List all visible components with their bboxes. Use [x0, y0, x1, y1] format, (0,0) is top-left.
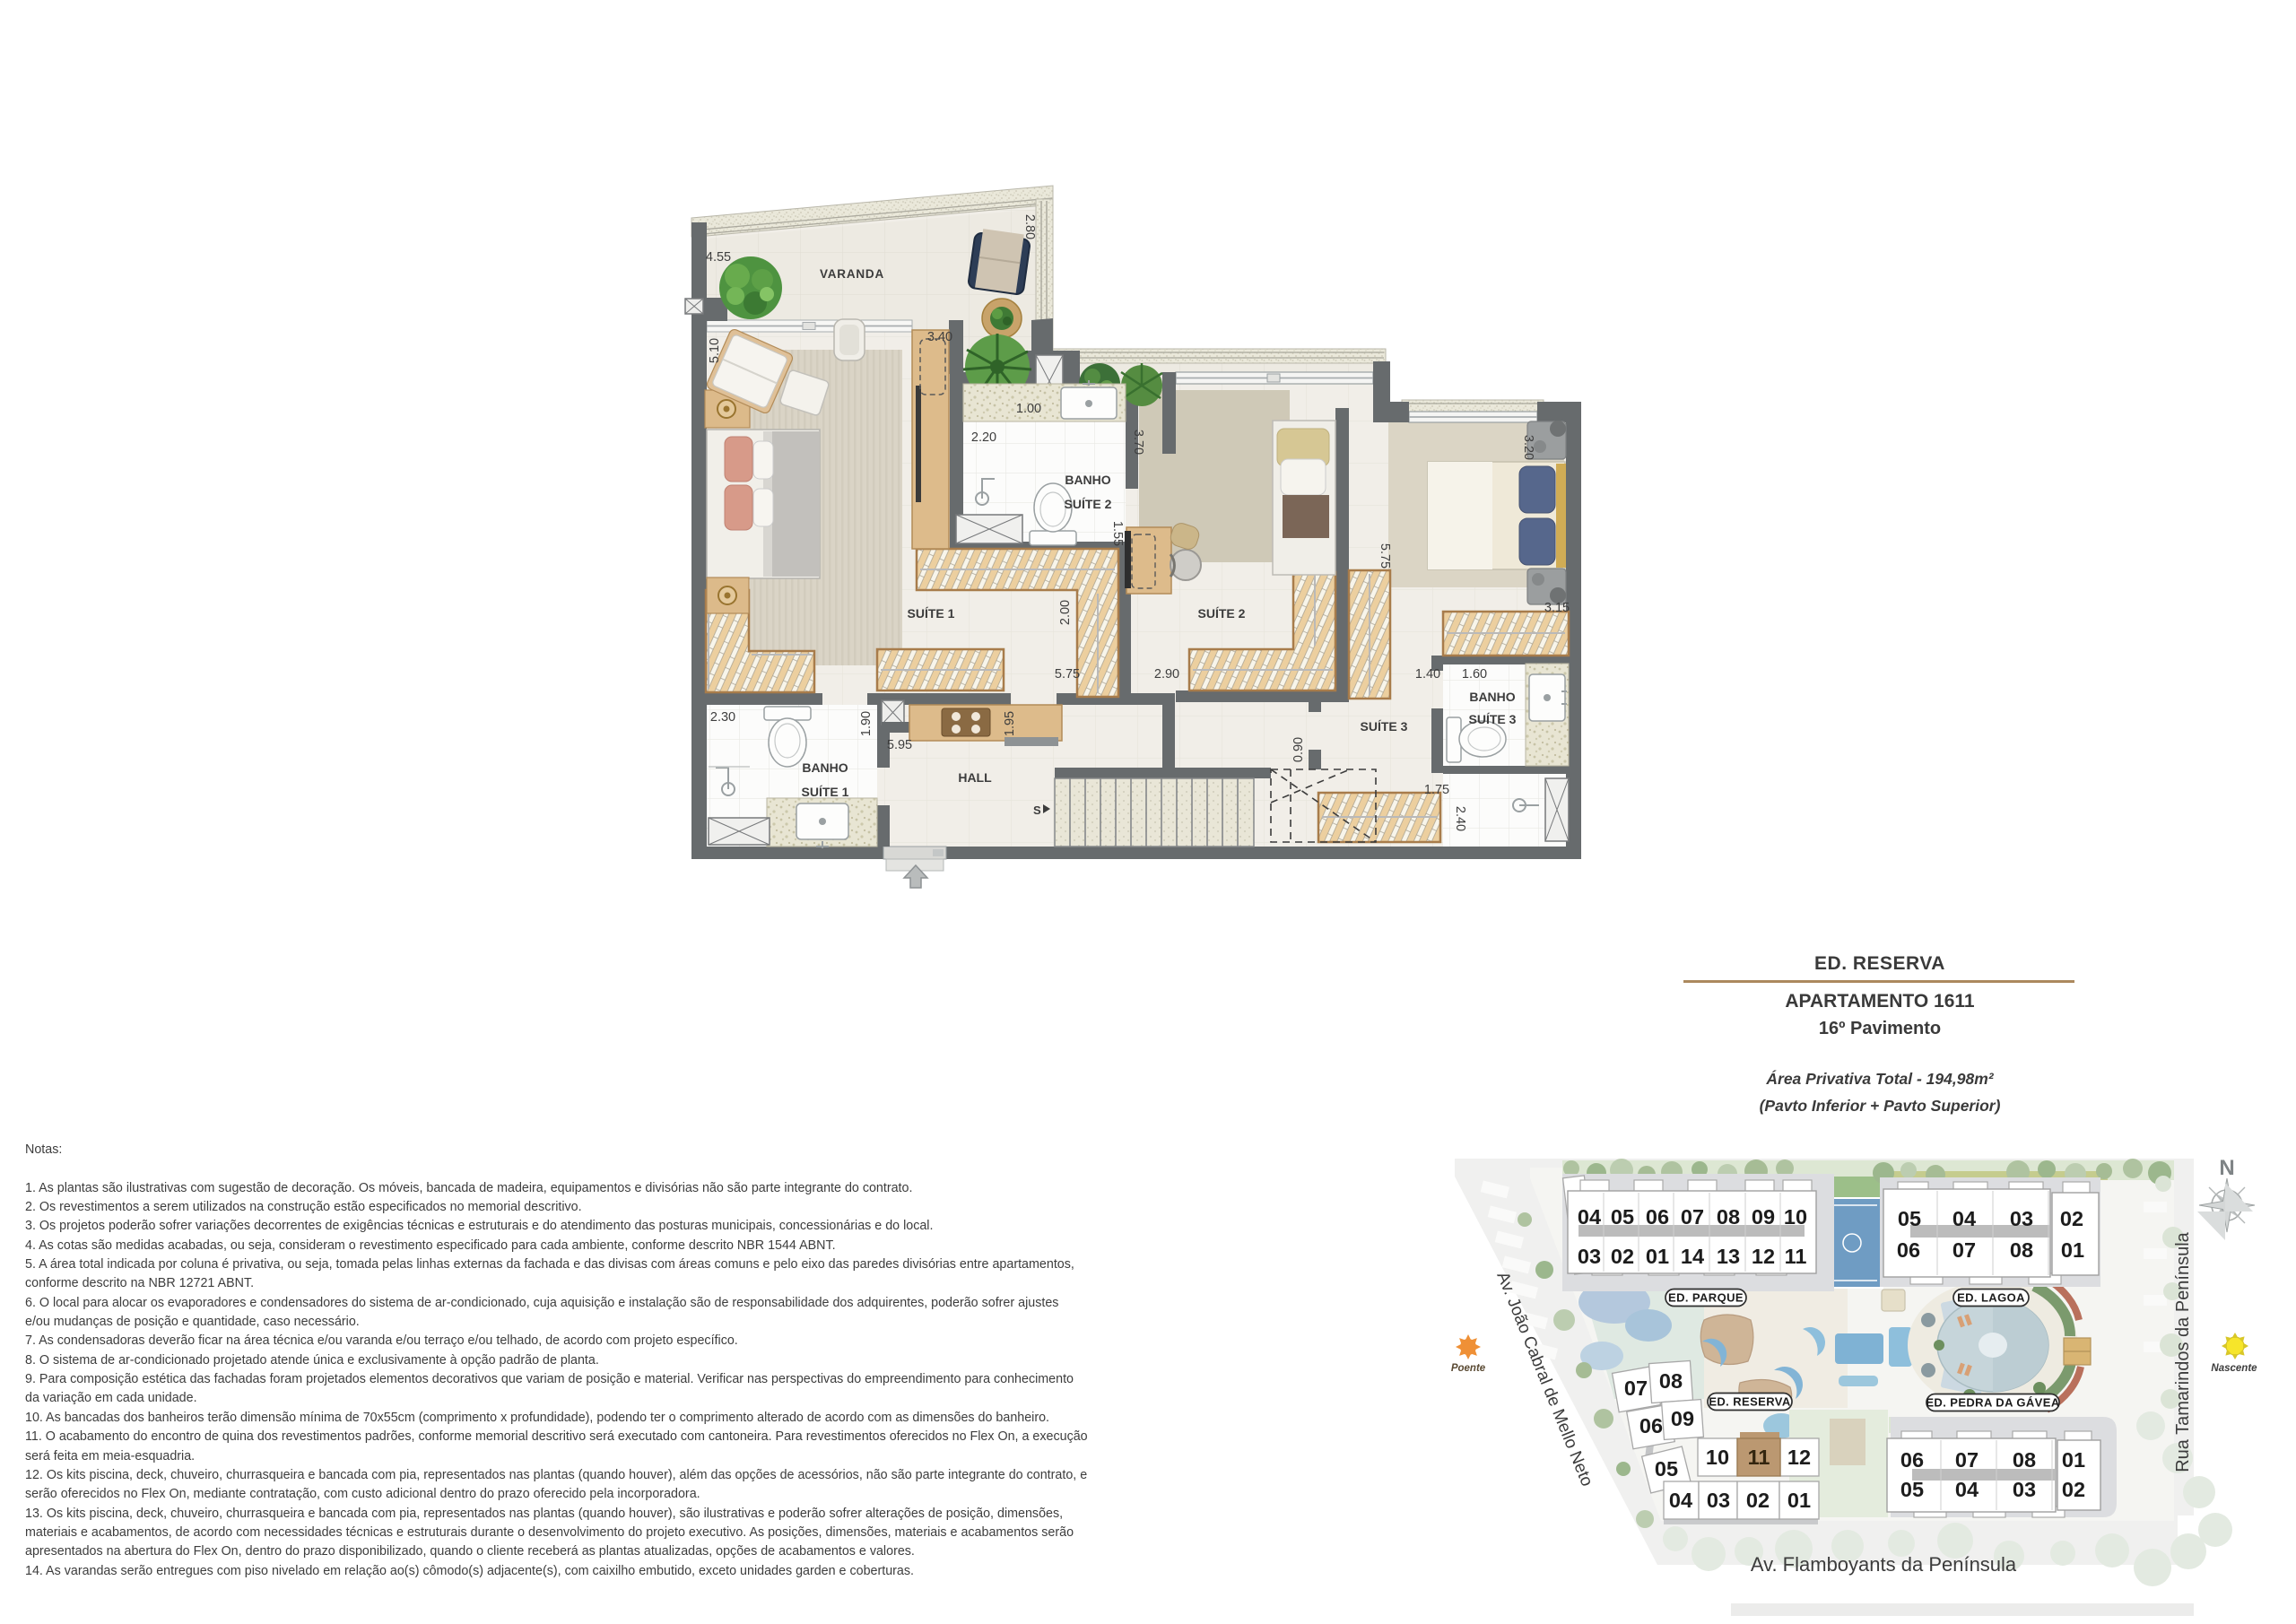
svg-text:03: 03 [2013, 1478, 2036, 1501]
svg-text:SUÍTE 3: SUÍTE 3 [1361, 719, 1408, 734]
svg-text:06: 06 [1897, 1238, 1920, 1262]
svg-text:5.75: 5.75 [1378, 543, 1392, 569]
svg-text:3.20: 3.20 [1521, 435, 1535, 460]
svg-text:2.90: 2.90 [1154, 667, 1179, 682]
svg-text:01: 01 [1646, 1245, 1669, 1268]
svg-text:5.75: 5.75 [1055, 667, 1080, 682]
svg-text:10: 10 [1706, 1446, 1729, 1469]
svg-text:2.00: 2.00 [1058, 600, 1073, 625]
svg-text:06: 06 [1646, 1205, 1669, 1229]
svg-text:3.70: 3.70 [1131, 430, 1145, 455]
svg-text:01: 01 [2061, 1238, 2084, 1262]
svg-text:02: 02 [1746, 1489, 1770, 1512]
svg-text:ED. PEDRA DA GÁVEA: ED. PEDRA DA GÁVEA [1926, 1396, 2059, 1410]
svg-text:05: 05 [1611, 1205, 1634, 1229]
svg-text:10: 10 [1784, 1205, 1807, 1229]
svg-text:05: 05 [1898, 1207, 1921, 1230]
svg-text:07: 07 [1681, 1205, 1704, 1229]
svg-text:2.40: 2.40 [1453, 806, 1467, 831]
svg-text:04: 04 [1955, 1478, 1979, 1501]
svg-text:2.80: 2.80 [1022, 214, 1037, 239]
svg-text:SUÍTE 1: SUÍTE 1 [908, 606, 955, 621]
svg-text:04: 04 [1952, 1207, 1976, 1230]
svg-text:06: 06 [1900, 1448, 1924, 1472]
svg-text:HALL: HALL [958, 770, 992, 785]
svg-text:S: S [1033, 803, 1041, 817]
svg-text:SUÍTE 1: SUÍTE 1 [802, 785, 849, 799]
svg-text:03: 03 [1707, 1489, 1730, 1512]
svg-text:14: 14 [1681, 1245, 1704, 1268]
svg-text:08: 08 [2010, 1238, 2033, 1262]
svg-text:ED. RESERVA: ED. RESERVA [1709, 1395, 1791, 1409]
svg-text:VARANDA: VARANDA [820, 267, 884, 281]
svg-text:05: 05 [1655, 1457, 1678, 1481]
svg-text:02: 02 [1611, 1245, 1634, 1268]
svg-text:07: 07 [1624, 1376, 1648, 1400]
svg-text:SUÍTE 2: SUÍTE 2 [1198, 606, 1246, 621]
svg-text:3.15: 3.15 [1544, 601, 1570, 615]
svg-text:13: 13 [1717, 1245, 1740, 1268]
svg-text:ED. PARQUE: ED. PARQUE [1668, 1291, 1744, 1305]
svg-text:04: 04 [1578, 1205, 1601, 1229]
svg-text:08: 08 [1717, 1205, 1740, 1229]
svg-text:03: 03 [2010, 1207, 2033, 1230]
svg-text:SUÍTE 3: SUÍTE 3 [1469, 712, 1517, 726]
svg-text:07: 07 [1952, 1238, 1976, 1262]
svg-text:11: 11 [1785, 1245, 1807, 1268]
svg-text:0.90: 0.90 [1291, 737, 1306, 762]
svg-text:05: 05 [1900, 1478, 1924, 1501]
svg-text:09: 09 [1752, 1205, 1775, 1229]
svg-text:1.40: 1.40 [1415, 667, 1440, 682]
svg-text:11: 11 [1748, 1446, 1770, 1469]
svg-text:2.30: 2.30 [710, 710, 735, 725]
svg-text:BANHO: BANHO [1469, 690, 1515, 704]
svg-text:1.90: 1.90 [859, 711, 874, 736]
svg-text:SUÍTE 2: SUÍTE 2 [1065, 497, 1112, 511]
svg-text:2.20: 2.20 [971, 430, 996, 445]
svg-text:03: 03 [1578, 1245, 1601, 1268]
svg-text:01: 01 [1787, 1489, 1811, 1512]
svg-text:N: N [2219, 1156, 2234, 1180]
svg-text:Av. Flamboyants da Península: Av. Flamboyants da Península [1751, 1553, 2017, 1576]
svg-text:12: 12 [1787, 1446, 1811, 1469]
svg-text:5.10: 5.10 [708, 338, 722, 363]
svg-text:07: 07 [1955, 1448, 1979, 1472]
svg-text:BANHO: BANHO [1065, 473, 1110, 487]
svg-text:04: 04 [1669, 1489, 1692, 1512]
svg-text:1.60: 1.60 [1462, 667, 1487, 682]
svg-text:06: 06 [1639, 1414, 1663, 1437]
svg-text:12: 12 [1752, 1245, 1775, 1268]
svg-text:5.95: 5.95 [887, 738, 912, 752]
svg-text:BANHO: BANHO [802, 760, 848, 775]
svg-text:08: 08 [2013, 1448, 2036, 1472]
svg-text:09: 09 [1671, 1407, 1694, 1430]
svg-text:01: 01 [2062, 1448, 2085, 1472]
svg-text:08: 08 [1659, 1369, 1683, 1393]
svg-text:1.55: 1.55 [1110, 521, 1125, 546]
svg-text:1.95: 1.95 [1003, 711, 1017, 736]
svg-text:4.55: 4.55 [706, 250, 731, 265]
svg-text:02: 02 [2062, 1478, 2085, 1501]
svg-text:3.40: 3.40 [927, 330, 952, 344]
svg-text:1.00: 1.00 [1016, 402, 1041, 416]
svg-text:1.75: 1.75 [1424, 783, 1449, 797]
svg-text:02: 02 [2060, 1207, 2083, 1230]
svg-text:Nascente: Nascente [2211, 1363, 2257, 1374]
svg-text:Rua Tamarindos da Península: Rua Tamarindos da Península [2173, 1231, 2193, 1472]
svg-text:ED. LAGOA: ED. LAGOA [1957, 1291, 2025, 1305]
svg-text:Poente: Poente [1451, 1363, 1486, 1374]
